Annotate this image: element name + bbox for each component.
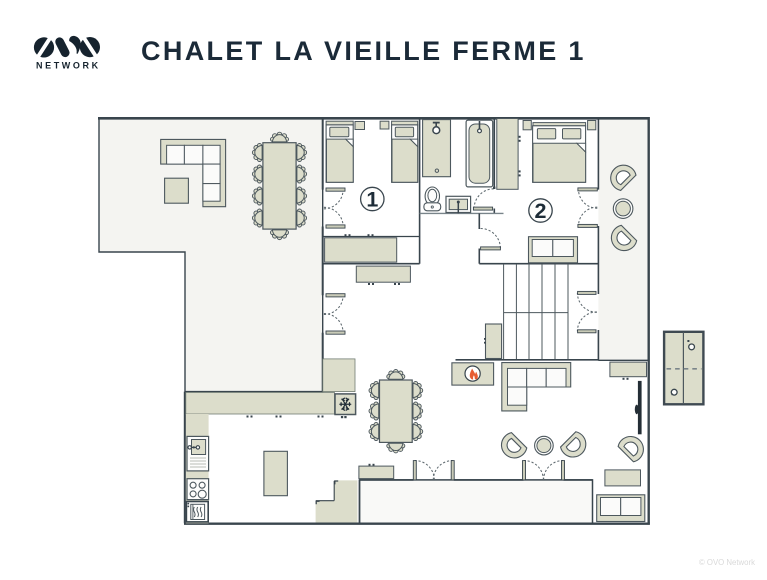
svg-text:© OVO Network: © OVO Network: [699, 558, 755, 567]
svg-text:CHALET LA VIEILLE FERME 1: CHALET LA VIEILLE FERME 1: [141, 36, 586, 66]
svg-text:1: 1: [366, 188, 378, 212]
svg-text:NETWORK: NETWORK: [36, 61, 101, 71]
svg-text:2: 2: [535, 199, 547, 223]
